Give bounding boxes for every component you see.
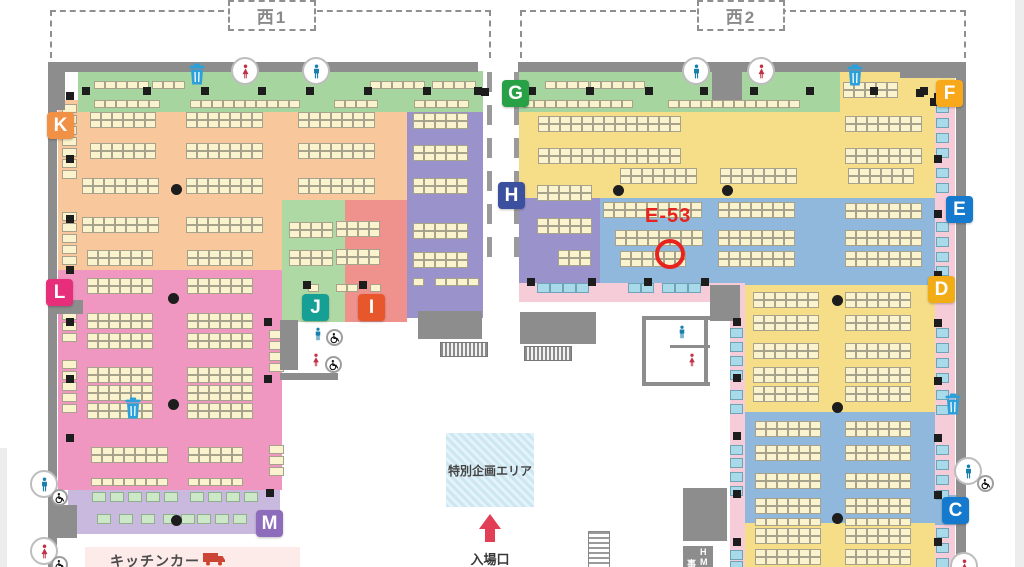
pillar xyxy=(733,374,741,382)
booth-cell xyxy=(789,100,800,108)
booth-cell xyxy=(892,168,903,176)
booth-cell xyxy=(353,112,364,120)
booth-cell xyxy=(604,148,615,156)
booth-cell xyxy=(556,100,567,108)
booth-cell xyxy=(878,148,889,156)
booth-cell xyxy=(786,375,797,383)
booth-cell xyxy=(146,478,157,486)
booth-cell xyxy=(435,231,446,239)
booth-cell xyxy=(867,203,878,211)
booth-cell xyxy=(729,259,740,267)
booth-cell xyxy=(900,367,911,375)
booth-cell xyxy=(718,238,729,246)
booth-cell xyxy=(369,229,380,237)
booth-cell xyxy=(413,278,424,286)
booth-cell xyxy=(134,151,145,159)
booth-cell xyxy=(675,176,686,184)
booth-cell xyxy=(856,116,867,124)
booth-cell xyxy=(889,323,900,331)
booth-cell xyxy=(548,226,559,234)
wheelchair-icon xyxy=(977,475,994,492)
booth-cell xyxy=(145,151,156,159)
booth-cell xyxy=(569,250,580,258)
booth-cell xyxy=(134,120,145,128)
zone-west1-purple xyxy=(407,112,483,318)
booth-cell xyxy=(197,217,208,225)
booth-cell xyxy=(903,168,914,176)
booth-cell xyxy=(845,292,856,300)
booth-cell xyxy=(730,550,743,560)
booth-cell xyxy=(764,351,775,359)
booth-cell xyxy=(435,113,446,121)
booth-cell xyxy=(358,257,369,265)
booth-cell xyxy=(631,259,642,267)
booth-cell xyxy=(560,156,571,164)
booth-cell xyxy=(845,351,856,359)
booth-cell xyxy=(145,112,156,120)
booth-cell xyxy=(298,178,309,186)
booth-cell xyxy=(653,176,664,184)
booth-cell xyxy=(221,478,232,486)
booth-cell xyxy=(668,100,679,108)
booth-cell xyxy=(342,186,353,194)
booth-cell xyxy=(642,259,653,267)
booth-cell xyxy=(230,186,241,194)
booth-cell xyxy=(128,492,142,502)
booth-cell xyxy=(799,498,810,506)
booth-cell xyxy=(681,230,692,238)
booth-cell xyxy=(612,81,623,89)
booth-cell xyxy=(127,100,138,108)
booth-cell xyxy=(799,429,810,437)
booth-cell xyxy=(580,250,591,258)
booth-cell xyxy=(740,238,751,246)
wall xyxy=(712,62,742,100)
booth-cell xyxy=(252,112,263,120)
booth-cell xyxy=(589,100,600,108)
booth-cell xyxy=(878,421,889,429)
booth-cell xyxy=(137,225,148,233)
booth-cell xyxy=(845,259,856,267)
booth-cell xyxy=(457,186,468,194)
booth-cell xyxy=(878,429,889,437)
booth-cell xyxy=(878,116,889,124)
booth-cell xyxy=(753,386,764,394)
booth-cell xyxy=(545,100,556,108)
booth-cell xyxy=(745,100,756,108)
booth-cell xyxy=(241,217,252,225)
booth-cell xyxy=(845,549,856,557)
booth-cell xyxy=(900,300,911,308)
wheelchair-icon xyxy=(51,489,68,506)
booth-cell xyxy=(856,124,867,132)
page-edge xyxy=(1015,0,1024,567)
booth-cell xyxy=(642,251,653,259)
booth-cell xyxy=(115,217,126,225)
booth-cell xyxy=(740,230,751,238)
booth-cell xyxy=(766,549,777,557)
booth-cell xyxy=(208,492,222,502)
booth-cell xyxy=(187,321,198,329)
booth-cell xyxy=(241,112,252,120)
booth-cell xyxy=(900,386,911,394)
booth-cell xyxy=(777,453,788,461)
pillar xyxy=(700,87,708,95)
booth-cell xyxy=(186,112,197,120)
booth-cell xyxy=(110,492,124,502)
booth-cell xyxy=(142,411,153,419)
booth-cell xyxy=(889,481,900,489)
booth-cell xyxy=(718,230,729,238)
booth-cell xyxy=(753,300,764,308)
booth-cell xyxy=(810,445,821,453)
pillar xyxy=(66,266,74,274)
booth-cell xyxy=(112,112,123,120)
booth-cell xyxy=(777,506,788,514)
booth-cell xyxy=(867,259,878,267)
booth-cell xyxy=(126,225,137,233)
booth-cell xyxy=(670,156,681,164)
booth-cell xyxy=(93,186,104,194)
booth-cell xyxy=(808,394,819,402)
booth-cell xyxy=(101,112,112,120)
booth-cell xyxy=(889,375,900,383)
booth-cell xyxy=(135,447,146,455)
booth-cell xyxy=(187,250,198,258)
pillar-column xyxy=(613,185,624,196)
booth-cell xyxy=(446,178,457,186)
wheelchair-icon xyxy=(51,556,68,567)
booth-cell xyxy=(878,156,889,164)
booth-cell xyxy=(187,278,198,286)
booth-cell xyxy=(571,116,582,124)
booth-cell xyxy=(720,176,731,184)
booth-cell xyxy=(856,518,867,526)
booth-cell xyxy=(797,386,808,394)
booth-cell xyxy=(620,176,631,184)
booth-cell xyxy=(208,186,219,194)
booth-cell xyxy=(786,386,797,394)
booth-cell xyxy=(198,333,209,341)
booth-cell xyxy=(197,143,208,151)
booth-cell xyxy=(797,351,808,359)
wheelchair-icon xyxy=(326,329,343,346)
booth-cell xyxy=(900,211,911,219)
booth-cell xyxy=(856,453,867,461)
booth-cell xyxy=(881,168,892,176)
booth-cell xyxy=(570,185,581,193)
booth-cell xyxy=(859,168,870,176)
booth-cell xyxy=(755,445,766,453)
booth-cell xyxy=(845,421,856,429)
pillar xyxy=(701,278,709,286)
booth-cell xyxy=(157,478,168,486)
booth-cell xyxy=(662,283,675,293)
booth-cell xyxy=(424,145,435,153)
booth-cell xyxy=(856,323,867,331)
pillar xyxy=(934,210,942,218)
booth-cell xyxy=(353,151,364,159)
booth-cell xyxy=(219,178,230,186)
booth-cell xyxy=(220,258,231,266)
booth-cell xyxy=(123,120,134,128)
booth-cell xyxy=(209,278,220,286)
booth-cell xyxy=(131,278,142,286)
booth-cell xyxy=(242,411,253,419)
booth-cell xyxy=(766,536,777,544)
booth-cell xyxy=(545,81,556,89)
pillar xyxy=(934,319,942,327)
booth-cell xyxy=(845,323,856,331)
booth-cell xyxy=(878,506,889,514)
booth-cell xyxy=(773,238,784,246)
booth-cell xyxy=(424,121,435,129)
booth-cell xyxy=(856,251,867,259)
booth-cell xyxy=(604,124,615,132)
booth-cell xyxy=(889,203,900,211)
booth-cell xyxy=(137,178,148,186)
booth-cell xyxy=(137,186,148,194)
booth-cell xyxy=(856,343,867,351)
booth-cell xyxy=(755,518,766,526)
booth-cell xyxy=(116,100,127,108)
booth-cell xyxy=(751,210,762,218)
booth-cell xyxy=(116,81,127,89)
booth-cell xyxy=(773,202,784,210)
booth-cell xyxy=(309,178,320,186)
booth-cell xyxy=(403,81,414,89)
booth-cell xyxy=(131,341,142,349)
booth-cell xyxy=(845,453,856,461)
booth-cell xyxy=(82,186,93,194)
booth-cell xyxy=(911,230,922,238)
booth-cell xyxy=(900,498,911,506)
booth-cell xyxy=(198,385,209,393)
booth-cell xyxy=(808,375,819,383)
booth-cell xyxy=(134,112,145,120)
booth-cell xyxy=(797,292,808,300)
booth-cell xyxy=(664,168,675,176)
booth-cell xyxy=(788,518,799,526)
booth-cell xyxy=(936,168,949,178)
booth-cell xyxy=(364,120,375,128)
booth-cell xyxy=(309,112,320,120)
booth-cell xyxy=(784,259,795,267)
booth-cell xyxy=(242,333,253,341)
booth-cell xyxy=(867,386,878,394)
booth-cell xyxy=(126,186,137,194)
wall xyxy=(48,62,478,72)
booth-cell xyxy=(810,536,821,544)
booth-cell xyxy=(856,148,867,156)
booth-cell xyxy=(320,112,331,120)
booth-cell xyxy=(558,250,569,258)
booth-cell xyxy=(231,313,242,321)
booth-cell xyxy=(219,112,230,120)
booth-cell xyxy=(762,210,773,218)
booth-cell xyxy=(777,549,788,557)
booth-cell xyxy=(571,148,582,156)
booth-cell xyxy=(309,120,320,128)
booth-cell xyxy=(856,230,867,238)
booth-cell xyxy=(82,178,93,186)
booth-cell xyxy=(867,453,878,461)
booth-cell xyxy=(137,217,148,225)
booth-cell xyxy=(446,278,457,286)
booth-cell xyxy=(764,375,775,383)
booth-cell xyxy=(104,178,115,186)
booth-cell xyxy=(230,217,241,225)
booth-cell xyxy=(810,421,821,429)
booth-cell xyxy=(788,453,799,461)
booth-cell xyxy=(269,445,284,454)
booth-cell xyxy=(900,557,911,565)
pillar-column xyxy=(832,295,843,306)
wall xyxy=(57,505,77,538)
block-marker-F: F xyxy=(936,80,963,107)
booth-cell xyxy=(187,403,198,411)
booth-cell xyxy=(231,278,242,286)
booth-cell xyxy=(124,455,135,463)
booth-cell xyxy=(730,356,743,366)
booth-cell xyxy=(799,473,810,481)
booth-cell xyxy=(98,385,109,393)
booth-cell xyxy=(298,186,309,194)
booth-cell xyxy=(786,394,797,402)
booth-cell xyxy=(786,367,797,375)
booth-cell xyxy=(571,124,582,132)
booth-cell xyxy=(245,100,256,108)
booth-cell xyxy=(120,321,131,329)
booth-cell xyxy=(867,429,878,437)
booth-cell xyxy=(289,230,300,238)
booth-cell xyxy=(878,394,889,402)
booth-cell xyxy=(637,238,648,246)
mens-toilet-figure-icon xyxy=(312,325,324,348)
booth-cell xyxy=(220,393,231,401)
pillar xyxy=(66,375,74,383)
booth-cell xyxy=(157,447,168,455)
booth-cell xyxy=(867,148,878,156)
booth-cell xyxy=(142,341,153,349)
booth-cell xyxy=(626,148,637,156)
booth-cell xyxy=(615,116,626,124)
pillar xyxy=(359,281,367,289)
booth-cell xyxy=(62,170,77,179)
booth-cell xyxy=(845,528,856,536)
booth-cell xyxy=(766,528,777,536)
booth-cell xyxy=(786,176,797,184)
booth-cell xyxy=(900,203,911,211)
booth-cell xyxy=(773,251,784,259)
booth-cell xyxy=(753,375,764,383)
booth-cell xyxy=(659,156,670,164)
booth-cell xyxy=(936,528,949,538)
booth-cell xyxy=(878,300,889,308)
office-label-m: M xyxy=(700,557,708,567)
booth-cell xyxy=(878,453,889,461)
wall xyxy=(520,312,596,344)
booth-cell xyxy=(773,259,784,267)
booth-cell xyxy=(753,168,764,176)
booth-cell xyxy=(797,300,808,308)
booth-cell xyxy=(134,143,145,151)
booth-cell xyxy=(424,260,435,268)
passage-wall-dash xyxy=(514,105,519,125)
booth-cell xyxy=(105,81,116,89)
booth-cell xyxy=(593,156,604,164)
booth-cell xyxy=(889,315,900,323)
booth-cell xyxy=(234,100,245,108)
booth-cell xyxy=(198,250,209,258)
booth-cell xyxy=(322,230,333,238)
booth-cell xyxy=(345,100,356,108)
booth-cell xyxy=(777,557,788,565)
booth-cell xyxy=(762,202,773,210)
booth-cell xyxy=(320,151,331,159)
booth-cell xyxy=(889,238,900,246)
booth-cell xyxy=(220,367,231,375)
booth-cell xyxy=(336,284,347,292)
booth-cell xyxy=(413,145,424,153)
booth-cell xyxy=(109,333,120,341)
booth-cell xyxy=(102,478,113,486)
booth-cell xyxy=(900,528,911,536)
booth-cell xyxy=(230,143,241,151)
booth-cell xyxy=(87,321,98,329)
booth-cell xyxy=(152,81,163,89)
booth-cell xyxy=(353,186,364,194)
booth-cell xyxy=(775,386,786,394)
booth-cell xyxy=(559,226,570,234)
booth-cell xyxy=(797,315,808,323)
booth-cell xyxy=(424,186,435,194)
booth-cell xyxy=(889,518,900,526)
booth-cell xyxy=(252,151,263,159)
booth-cell xyxy=(751,251,762,259)
highlighted-booth-label: E-53 xyxy=(645,205,715,228)
booth-cell xyxy=(198,278,209,286)
booth-cell xyxy=(753,315,764,323)
booth-cell xyxy=(98,393,109,401)
booth-cell xyxy=(878,367,889,375)
pillar xyxy=(934,377,942,385)
booth-cell xyxy=(187,286,198,294)
booth-cell xyxy=(102,447,113,455)
booth-cell xyxy=(220,411,231,419)
booth-cell xyxy=(220,313,231,321)
booth-cell xyxy=(230,112,241,120)
booth-cell xyxy=(198,411,209,419)
booth-cell xyxy=(788,421,799,429)
booth-cell xyxy=(620,259,631,267)
special-project-area: 特別企画エリア xyxy=(446,433,534,507)
office-label-block: H M 事 xyxy=(683,546,713,567)
pillar-column xyxy=(722,185,733,196)
block-marker-G: G xyxy=(502,80,529,107)
booth-cell xyxy=(232,478,243,486)
booth-cell xyxy=(762,251,773,259)
booth-cell xyxy=(413,186,424,194)
booth-cell xyxy=(936,328,949,338)
booth-cell xyxy=(197,112,208,120)
booth-cell xyxy=(878,549,889,557)
booth-cell xyxy=(810,506,821,514)
pillar xyxy=(806,87,814,95)
booth-cell xyxy=(120,250,131,258)
pillar xyxy=(481,88,489,96)
booth-cell xyxy=(810,429,821,437)
